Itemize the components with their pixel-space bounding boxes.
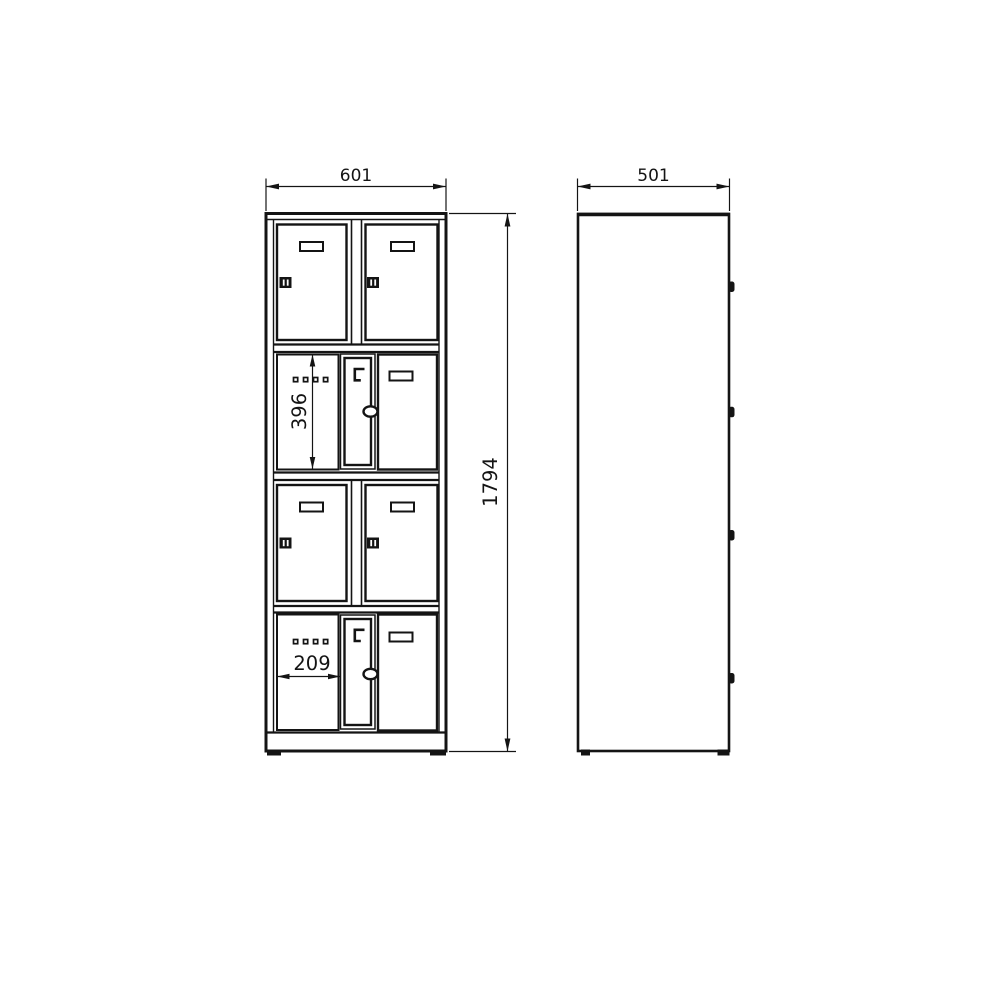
side-view xyxy=(577,214,735,756)
narrow-door-row2 xyxy=(341,354,378,469)
vent-holes xyxy=(294,378,328,382)
shelf-band-2 xyxy=(274,473,439,481)
label-holder xyxy=(391,242,414,251)
arrowhead-bottom xyxy=(505,739,511,752)
side-lock-knob xyxy=(729,407,735,418)
label-holder xyxy=(300,242,323,251)
side-lock-knob xyxy=(729,530,735,541)
dim-label-front-width: 601 xyxy=(340,166,372,186)
front-foot-right xyxy=(430,750,446,756)
door-row4-right xyxy=(378,615,437,731)
lock-icon xyxy=(367,277,379,288)
center-stile-row3 xyxy=(352,480,362,606)
shelf-band-1 xyxy=(274,345,439,353)
side-lock-knob xyxy=(729,282,735,293)
shelf-band-3 xyxy=(274,606,439,613)
dim-compartment-height: 396 xyxy=(288,355,315,470)
arrowhead-right xyxy=(433,184,446,190)
arrowhead-top xyxy=(310,355,316,367)
side-foot-left xyxy=(581,750,590,756)
side-lock-knob xyxy=(729,673,735,684)
door-row1-right xyxy=(366,225,438,341)
dim-front-width: 601 xyxy=(266,166,446,211)
arrowhead-top xyxy=(505,214,511,227)
lock-icon xyxy=(367,538,379,549)
keyhole-knob-icon xyxy=(364,406,378,416)
front-foot-left xyxy=(267,750,281,756)
door-row1-left xyxy=(277,225,347,341)
dim-compartment-width: 209 xyxy=(277,652,341,679)
arrowhead-left xyxy=(277,674,290,680)
center-stile-row1 xyxy=(352,220,362,345)
label-holder xyxy=(391,503,414,512)
dim-label-overall-height: 1794 xyxy=(479,457,502,507)
locker-cabinet-drawing: 601 501 1794 396 xyxy=(0,0,1000,1000)
arrowhead-right xyxy=(717,184,730,190)
narrow-door-row4 xyxy=(341,615,378,729)
side-foot-right xyxy=(718,750,730,756)
dim-label-side-depth: 501 xyxy=(637,166,669,186)
label-holder xyxy=(390,633,413,642)
label-holder xyxy=(300,503,323,512)
dim-side-depth: 501 xyxy=(578,166,730,211)
dim-overall-height: 1794 xyxy=(449,214,516,752)
arrowhead-bottom xyxy=(310,457,316,469)
door-row3-left xyxy=(277,485,347,601)
dim-label-compartment-height: 396 xyxy=(288,393,311,430)
arrowhead-left xyxy=(578,184,591,190)
lock-icon xyxy=(280,277,292,288)
vent-holes xyxy=(294,640,328,644)
arrowhead-left xyxy=(266,184,279,190)
dim-label-compartment-width: 209 xyxy=(293,652,330,675)
door-row3-right xyxy=(366,485,438,601)
label-holder xyxy=(390,372,413,381)
door-row2-right xyxy=(378,355,437,470)
lock-icon xyxy=(280,538,292,549)
technical-drawing-page: 601 501 1794 396 xyxy=(0,0,1000,1000)
side-cabinet-outline xyxy=(578,214,729,751)
keyhole-knob-icon xyxy=(364,669,378,679)
